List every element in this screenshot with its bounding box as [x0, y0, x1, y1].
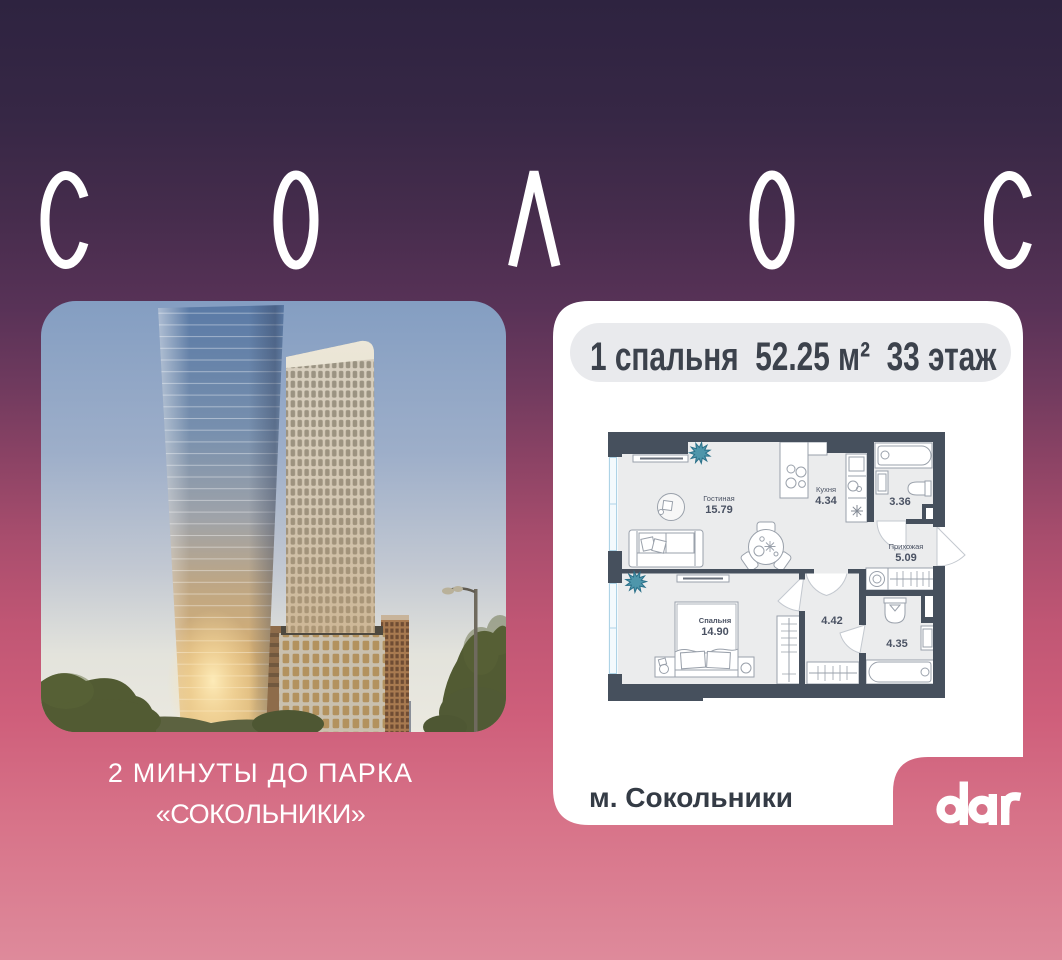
svg-text:5.09: 5.09	[895, 552, 916, 564]
svg-text:4.34: 4.34	[815, 495, 837, 507]
svg-text:Гостиная: Гостиная	[703, 494, 734, 503]
svg-text:4.35: 4.35	[886, 638, 907, 650]
svg-text:14.90: 14.90	[701, 626, 729, 638]
svg-text:4.42: 4.42	[821, 615, 842, 627]
svg-text:Кухня: Кухня	[816, 485, 836, 494]
svg-text:3.36: 3.36	[889, 496, 910, 508]
svg-text:Спальня: Спальня	[699, 616, 731, 625]
svg-text:Прихожая: Прихожая	[889, 542, 924, 551]
svg-text:15.79: 15.79	[705, 504, 733, 516]
